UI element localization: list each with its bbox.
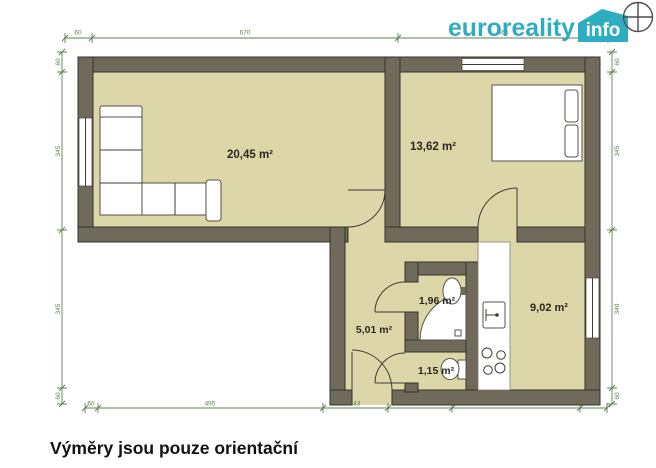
kitchen-faucet-knob (495, 313, 499, 317)
dimension-label: 60 (55, 58, 62, 66)
bathroom-faucet (461, 287, 466, 295)
room-label-kitchen: 9,02 m² (530, 302, 568, 314)
floor-plan-svg: 60 670 460 60 495 143 141 280 60 60 345 … (0, 0, 656, 430)
dimension-label: 60 (614, 58, 621, 66)
dimension-label: 670 (240, 30, 251, 37)
room-label-bathroom: 1,96 m² (419, 295, 456, 307)
dimension-label: 345 (55, 303, 62, 314)
wall-segment (405, 262, 418, 282)
dimension-label: 345 (55, 145, 62, 156)
wall-segment (385, 227, 478, 242)
pillow (565, 90, 578, 122)
quartered-circle-icon (624, 3, 653, 32)
kitchen-fixtures (478, 242, 510, 390)
room-label-living-room: 20,45 m² (227, 149, 273, 161)
wall-segment (330, 390, 352, 405)
wall-segment (330, 227, 345, 405)
dimension-label: 340 (614, 303, 621, 314)
dimension-label: 60 (87, 401, 95, 408)
wall-segment (392, 390, 600, 405)
dimension-label: 60 (55, 392, 62, 400)
logo-brand-text: euroreality (448, 14, 575, 42)
dimension-label: 495 (205, 401, 216, 408)
wall-segment (466, 262, 478, 390)
dimension-label: 345 (614, 145, 621, 156)
caption-text: Výměry jsou pouze orientační (50, 438, 298, 459)
sofa-back-cushion (100, 106, 142, 118)
wall-segment (517, 227, 585, 242)
shower-drain (455, 330, 461, 336)
room-label-hallway: 5,01 m² (356, 324, 393, 336)
sofa-armrest (206, 180, 221, 221)
room-label-wc: 1,15 m² (418, 365, 455, 377)
sofa-seat-vertical (100, 117, 142, 215)
wall-segment (585, 57, 600, 405)
room-label-bedroom: 13,62 m² (410, 141, 456, 153)
pillow (565, 125, 578, 157)
dimension-label: 60 (614, 392, 621, 400)
wall-segment (78, 227, 348, 242)
wall-segment (405, 383, 418, 392)
wall-segment (385, 57, 400, 242)
bed (492, 85, 582, 161)
dimension-label: 60 (74, 30, 82, 37)
logo-badge-text: info (586, 20, 621, 41)
logo: euroreality info (440, 0, 656, 50)
